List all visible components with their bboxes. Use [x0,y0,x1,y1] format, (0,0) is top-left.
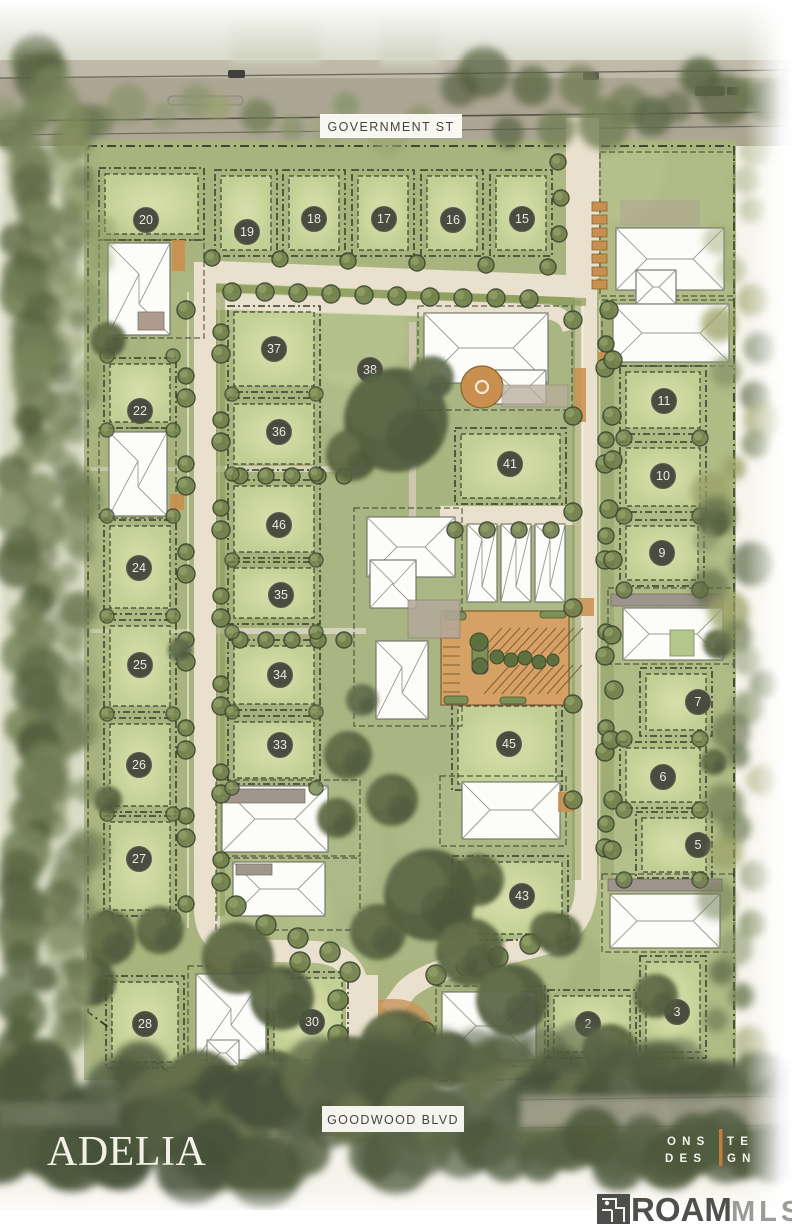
svg-text:19: 19 [240,225,254,239]
svg-text:5: 5 [695,838,702,852]
svg-text:28: 28 [138,1017,152,1031]
svg-text:43: 43 [515,889,529,903]
svg-text:TE: TE [727,1136,754,1148]
svg-text:DES: DES [665,1153,707,1165]
svg-text:ONS: ONS [667,1136,711,1148]
svg-text:33: 33 [273,738,287,752]
svg-text:15: 15 [515,212,529,226]
svg-text:GN: GN [727,1153,757,1165]
svg-text:37: 37 [267,342,281,356]
svg-text:16: 16 [446,213,460,227]
svg-text:20: 20 [139,213,153,227]
svg-text:36: 36 [272,425,286,439]
svg-text:24: 24 [132,561,146,575]
svg-text:10: 10 [656,469,670,483]
svg-text:ADELIA: ADELIA [47,1129,206,1175]
svg-text:ROAM: ROAM [631,1191,732,1224]
svg-text:7: 7 [695,695,702,709]
svg-text:25: 25 [133,658,147,672]
svg-text:27: 27 [132,852,146,866]
svg-text:18: 18 [307,212,321,226]
svg-text:34: 34 [273,668,287,682]
svg-text:GOODWOOD BLVD: GOODWOOD BLVD [327,1113,459,1127]
svg-text:22: 22 [133,404,147,418]
svg-text:MLS: MLS [731,1196,792,1224]
svg-text:GOVERNMENT ST: GOVERNMENT ST [327,120,454,134]
svg-text:46: 46 [272,518,286,532]
svg-text:17: 17 [377,212,391,226]
svg-text:41: 41 [503,457,517,471]
svg-text:9: 9 [659,546,666,560]
svg-text:6: 6 [660,770,667,784]
svg-text:26: 26 [132,758,146,772]
svg-text:35: 35 [274,588,288,602]
svg-text:45: 45 [502,737,516,751]
svg-text:11: 11 [658,394,671,408]
